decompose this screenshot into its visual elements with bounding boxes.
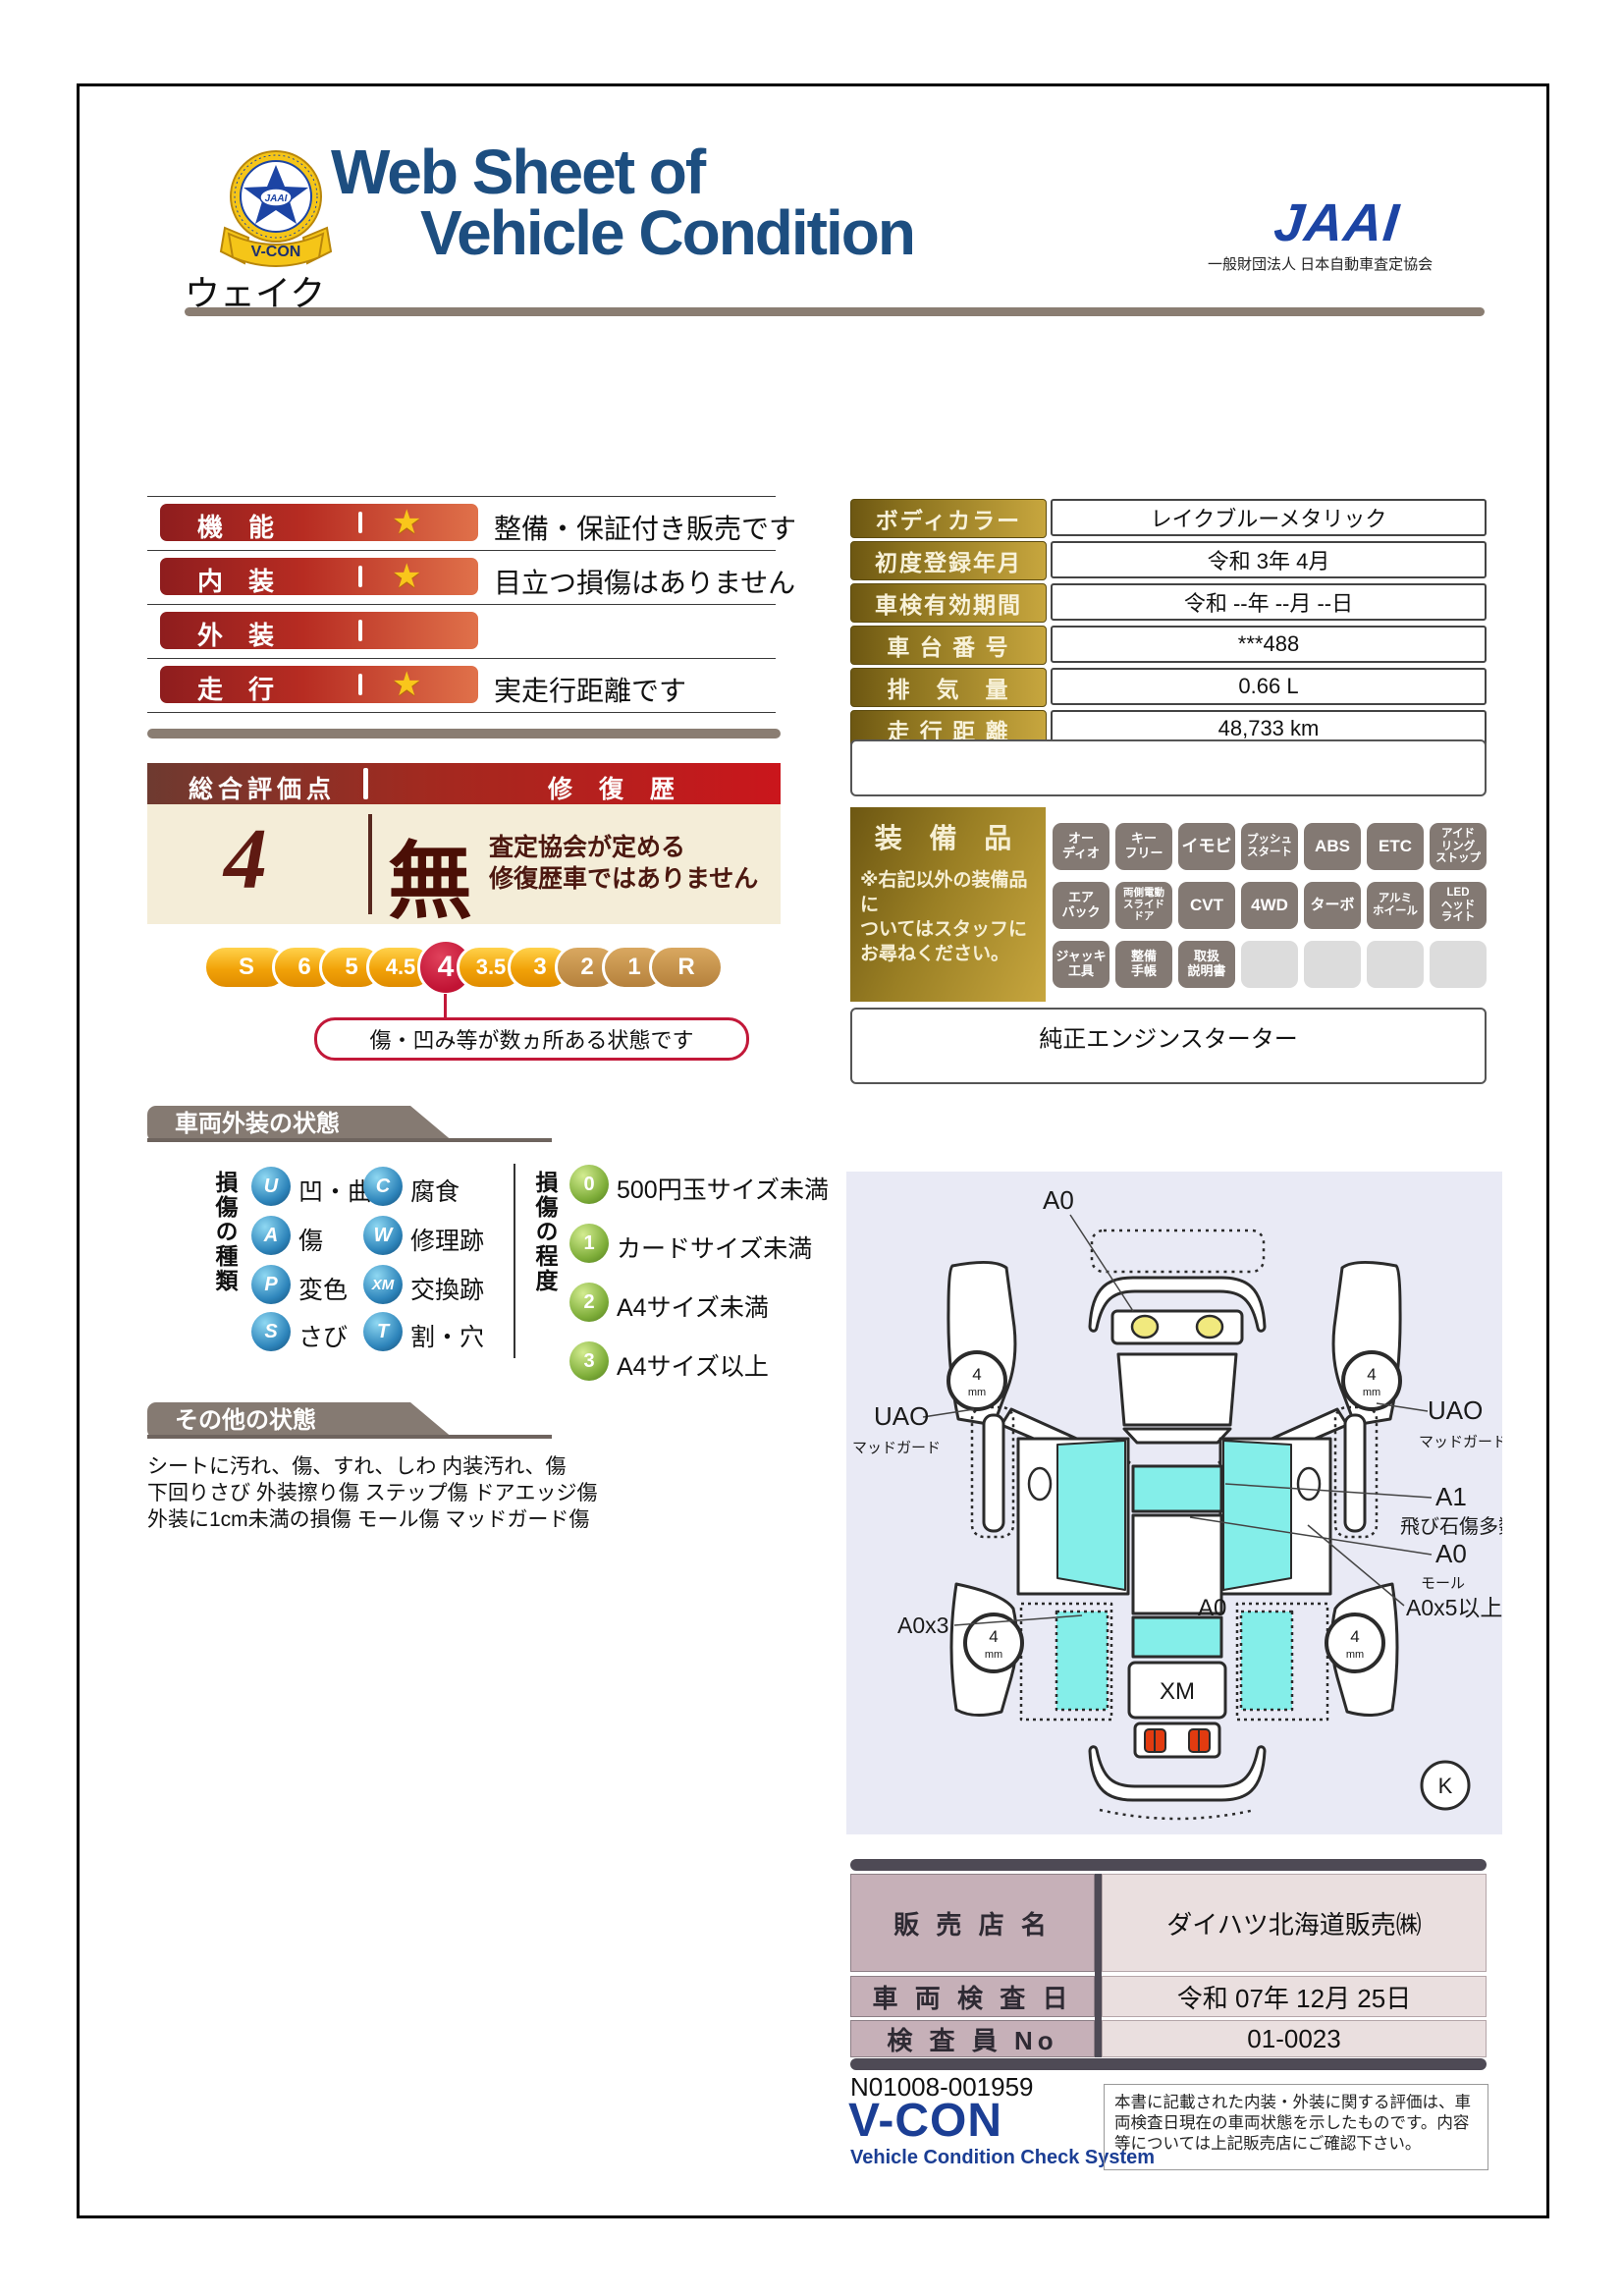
equipment-badge-4wd: 4WD (1241, 882, 1298, 929)
front-door-window (1223, 1441, 1291, 1590)
dealer-label: 検 査 員 No (850, 2020, 1095, 2057)
damage-label: 交換跡 (410, 1271, 484, 1306)
headlight-left (1132, 1316, 1158, 1338)
equipment-badge-idlingstop: アイド リング ストップ (1430, 823, 1487, 870)
rating-bar-function: 機 能 ★ (160, 504, 478, 541)
diagram-label-a1: A1 (1435, 1482, 1467, 1511)
degree-label: A4サイズ以上 (617, 1347, 769, 1383)
side-mirror (1298, 1468, 1320, 1500)
score-scale: S 6 5 4.5 4 3.5 3 2 1 R (203, 945, 753, 1002)
vcon-badge-logo: JAAI V-CON (211, 143, 341, 271)
equipment-badge-empty (1430, 941, 1487, 988)
bar-divider (358, 566, 362, 587)
degree-code-2: 2 (569, 1283, 609, 1322)
rear-bumper-dotted (1100, 1810, 1255, 1819)
score-description-bubble: 傷・凹み等が数ヵ所ある状態です (314, 1017, 749, 1061)
detail-label: 初度登録年月 (850, 541, 1047, 580)
degree-code-0: 0 (569, 1165, 609, 1204)
rating-separator (147, 550, 776, 551)
equipment-badge-etc: ETC (1367, 823, 1424, 870)
damage-label: 変色 (298, 1271, 348, 1306)
rating-label: 機 能 (197, 508, 274, 544)
other-line1: シートに汚れ、傷、すれ、しわ 内装汚れ、傷 (147, 1453, 598, 1480)
detail-label: ボディカラー (850, 499, 1047, 538)
damage-label: 腐食 (410, 1173, 460, 1208)
damage-label: 凹・曲 (298, 1173, 372, 1208)
equipment-badge-pushstart: プッシュ スタート (1241, 823, 1298, 870)
damage-label: 修理跡 (410, 1222, 484, 1257)
divider-rule (185, 307, 1485, 316)
equipment-badge-turbo: ターボ (1304, 882, 1361, 929)
detail-label: 排 気 量 (850, 668, 1047, 707)
repair-history-none: 無 (388, 812, 472, 935)
section-header-tail (147, 1435, 552, 1439)
scale-pill-r: R (649, 945, 724, 990)
damage-code-p: P (251, 1265, 291, 1304)
exterior-section-header: 車両外装の状態 (147, 1106, 454, 1142)
diagram-label-mole: モール (1421, 1575, 1465, 1592)
vehicle-condition-sheet: JAAI V-CON Web Sheet of Vehicle Conditio… (0, 0, 1623, 2296)
damage-label: さび (298, 1318, 348, 1353)
damage-code-u: U (251, 1167, 291, 1206)
section-header-tail (147, 1138, 552, 1142)
other-line3: 外装に1cm未満の損傷 モール傷 マッドガード傷 (147, 1506, 598, 1533)
headlight-right (1197, 1316, 1222, 1338)
degree-code-3: 3 (569, 1341, 609, 1381)
tread-depth-unit: mm (1346, 1649, 1364, 1661)
rear-door-window (1241, 1612, 1292, 1710)
equipment-badge-keyfree: キー フリー (1115, 823, 1172, 870)
mudguard (1345, 1415, 1365, 1531)
star-icon: ★ (392, 557, 421, 596)
diagram-label-xm: XM (1160, 1678, 1195, 1705)
rating-label: 外 装 (197, 616, 274, 652)
equipment-badge-empty (1241, 941, 1298, 988)
degree-label: カードサイズ未満 (617, 1230, 812, 1265)
cowl (1124, 1429, 1230, 1443)
jaai-logo: JAAI (1271, 192, 1403, 253)
equipment-badge-ledheadlight: LED ヘッド ライト (1430, 882, 1487, 929)
bubble-connector (444, 994, 447, 1019)
rating-comment: 目立つ損傷はありません (494, 562, 795, 601)
other-line2: 下回りさび 外装擦り傷 ステップ傷 ドアエッジ傷 (147, 1480, 598, 1506)
equipment-title: 装 備 品 (850, 817, 1046, 856)
rating-comment: 実走行距離です (494, 670, 686, 709)
detail-label: 車 台 番 号 (850, 626, 1047, 665)
empty-note-box (850, 739, 1487, 796)
rating-separator (147, 496, 776, 497)
overall-score-body: 4 無 査定協会が定める 修復歴車ではありません (147, 804, 781, 924)
detail-value: レイクブルーメタリック (1051, 499, 1487, 536)
equipment-note: ※右記以外の装備品に ついてはスタッフに お尋ねください。 (860, 868, 1046, 966)
car-damage-diagram: A0 UAO マッドガード UAO マッドガード A1 飛び石傷多数 A0 モー… (846, 1172, 1502, 1834)
vcon-logo-text: V-CON (848, 2094, 1002, 2148)
diagram-label-mudguard-left: マッドガード (852, 1440, 941, 1456)
bar-divider (358, 674, 362, 695)
equipment-badge-powerslidedoor: 両側電動 スライド ドア (1115, 882, 1172, 929)
detail-value: 0.66 L (1051, 668, 1487, 705)
tread-depth-unit: mm (985, 1649, 1002, 1661)
dealer-table-top-bar (850, 1859, 1487, 1871)
diagram-label-mudguard-right: マッドガード (1419, 1434, 1502, 1450)
equipment-title-box: 装 備 品 ※右記以外の装備品に ついてはスタッフに お尋ねください。 (850, 807, 1046, 1002)
damage-code-t: T (363, 1312, 403, 1351)
rating-separator (147, 712, 776, 713)
repair-history-title: 修 復 歴 (548, 770, 684, 805)
degree-label: A4サイズ未満 (617, 1288, 769, 1324)
overall-score-title: 総合評価点 (189, 770, 336, 805)
equipment-badge-alloywheel: アルミ ホイール (1367, 882, 1424, 929)
equipment-badge-empty (1367, 941, 1424, 988)
front-door-window (1057, 1441, 1125, 1590)
star-icon: ★ (392, 665, 421, 704)
dealer-table-divider (1095, 1874, 1102, 2057)
overall-score-header: 総合評価点 修 復 歴 (147, 763, 781, 804)
damage-code-w: W (363, 1216, 403, 1255)
bar-divider (358, 512, 362, 533)
diagram-label-a0x5: A0x5以上 (1406, 1595, 1502, 1620)
damage-code-c: C (363, 1167, 403, 1206)
diagram-label-k: K (1438, 1774, 1453, 1798)
other-condition-text: シートに汚れ、傷、すれ、しわ 内装汚れ、傷 下回りさび 外装擦り傷 ステップ傷 … (147, 1453, 598, 1533)
windshield-band (1133, 1466, 1221, 1511)
jaai-subtitle: 一般財団法人 日本自動車査定協会 (1208, 253, 1433, 274)
front-bumper-dotted (1092, 1230, 1264, 1272)
equipment-badge-immobilizer: イモビ (1178, 823, 1235, 870)
damage-code-a: A (251, 1216, 291, 1255)
rear-window-band (1133, 1617, 1221, 1657)
diagram-label-a0-center: A0 (1198, 1595, 1226, 1621)
dealer-value: 01-0023 (1102, 2020, 1487, 2057)
rear-door-window (1056, 1612, 1108, 1710)
side-mirror (1029, 1468, 1051, 1500)
diagram-label-a0-right: A0 (1435, 1539, 1467, 1568)
overall-score-value: 4 (224, 810, 267, 909)
diagram-label-uao-left: UAO (874, 1401, 929, 1431)
diagram-label-uao-right: UAO (1428, 1395, 1483, 1425)
dealer-value: ダイハツ北海道販売㈱ (1102, 1874, 1487, 1972)
bar-divider (358, 620, 362, 641)
rating-separator (147, 658, 776, 659)
damage-label: 割・穴 (410, 1318, 484, 1353)
star-icon: ★ (392, 503, 421, 542)
equipment-badge-jacktools: ジャッキ 工具 (1053, 941, 1109, 988)
degree-code-1: 1 (569, 1224, 609, 1263)
diagram-label-stone-chips: 飛び石傷多数 (1400, 1515, 1502, 1538)
rating-bar-interior: 内 装 ★ (160, 558, 478, 595)
rating-separator (147, 604, 776, 605)
divider-rule (147, 729, 781, 738)
rating-label: 走 行 (197, 670, 274, 706)
legend-divider (514, 1164, 515, 1358)
tread-depth-value: 4 (1350, 1627, 1359, 1646)
car-diagram-svg: A0 UAO マッドガード UAO マッドガード A1 飛び石傷多数 A0 モー… (846, 1172, 1502, 1834)
dealer-label: 販 売 店 名 (850, 1874, 1095, 1972)
repair-line2: 修復歴車ではありません (489, 865, 758, 893)
disclaimer-text: 本書に記載された内装・外装に関する評価は、車両検査日現在の車両状態を示したもので… (1104, 2084, 1488, 2170)
equipment-badge-audio: オー ディオ (1053, 823, 1109, 870)
degree-label: 500円玉サイズ未満 (617, 1171, 829, 1206)
diagram-label-a0x3: A0x3 (897, 1613, 948, 1638)
repair-history-text: 査定協会が定める 修復歴車ではありません (489, 832, 758, 895)
divider (368, 814, 372, 914)
detail-value: ***488 (1051, 626, 1487, 663)
repair-line1: 査定協会が定める (489, 834, 685, 861)
mudguard (984, 1415, 1003, 1531)
badge-vcon-text: V-CON (251, 244, 301, 260)
equipment-badge-airbag: エア バック (1053, 882, 1109, 929)
tread-depth-value: 4 (972, 1365, 981, 1384)
tread-depth-unit: mm (968, 1387, 986, 1398)
dealer-value: 令和 07年 12月 25日 (1102, 1976, 1487, 2017)
tread-depth-value: 4 (989, 1627, 998, 1646)
dealer-table-bottom-bar (850, 2058, 1487, 2070)
sheet-title-line2: Vehicle Condition (420, 196, 914, 269)
diagram-label-a0-top: A0 (1043, 1185, 1074, 1215)
damage-degree-title: 損傷の程度 (528, 1171, 562, 1293)
dealer-label: 車 両 検 査 日 (850, 1976, 1095, 2017)
equipment-badge-abs: ABS (1304, 823, 1361, 870)
bar-divider (363, 768, 368, 799)
rating-label: 内 装 (197, 562, 274, 598)
equipment-badge-cvt: CVT (1178, 882, 1235, 929)
damage-type-title: 損傷の種類 (208, 1171, 242, 1293)
detail-value: 令和 --年 --月 --日 (1051, 583, 1487, 621)
equipment-badge-manual: 取扱 説明書 (1178, 941, 1235, 988)
other-section-header: その他の状態 (147, 1402, 454, 1439)
damage-code-s: S (251, 1312, 291, 1351)
rating-comment: 整備・保証付き販売です (494, 508, 796, 547)
detail-label: 車検有効期間 (850, 583, 1047, 623)
damage-code-xm: XM (363, 1265, 403, 1304)
equipment-badge-servicebook: 整備 手帳 (1115, 941, 1172, 988)
equipment-badge-empty (1304, 941, 1361, 988)
badge-star-text: JAAI (265, 193, 288, 204)
tread-depth-value: 4 (1367, 1365, 1376, 1384)
rating-bar-mileage: 走 行 ★ (160, 666, 478, 703)
detail-value: 令和 3年 4月 (1051, 541, 1487, 578)
rating-bar-exterior: 外 装 (160, 612, 478, 649)
extra-equipment-box: 純正エンジンスターター (850, 1008, 1487, 1084)
hood (1118, 1354, 1236, 1425)
damage-label: 傷 (298, 1222, 323, 1257)
tread-depth-unit: mm (1363, 1387, 1380, 1398)
